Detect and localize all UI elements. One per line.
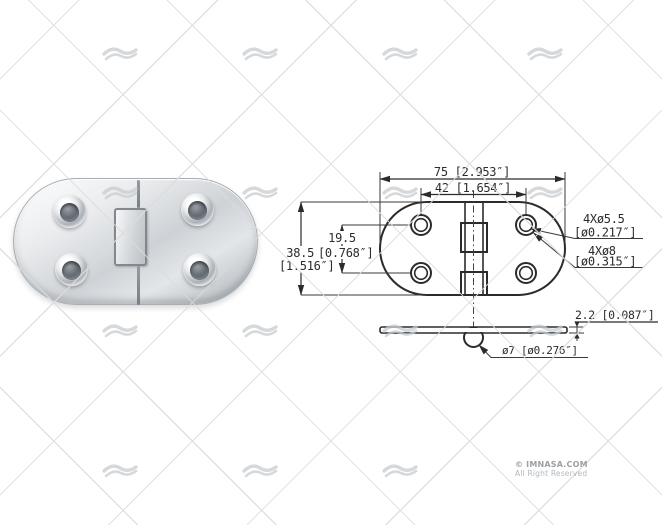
left-dimension-labels: 19.5 38.5 [0.768″] [1.516″]: [277, 231, 376, 273]
dim-pitch-v-in: [0.768″]: [318, 246, 373, 260]
technical-drawing: 75 [2.953″] 42 [1.654″] 19.5 38.5 [0.768…: [0, 0, 662, 525]
hole-bottom-left: [411, 263, 431, 283]
top-view: [380, 191, 565, 334]
dim-width-label: 75 [2.953″]: [434, 165, 510, 179]
callout-large-hole-in: [ø0.315″]: [574, 255, 636, 269]
callout-small-hole-in: [ø0.217″]: [574, 226, 636, 240]
dim-height-mm: 38.5: [286, 246, 314, 260]
dim-pitch-v-mm: 19.5: [328, 231, 356, 245]
callout-small-hole-qty: 4Xø5.5: [583, 212, 625, 226]
dimension-thickness-2-2: 2.2 [0.087″]: [569, 308, 658, 341]
dim-height-in: [1.516″]: [279, 259, 334, 273]
hole-top-left: [411, 215, 431, 235]
hole-bottom-right: [516, 263, 536, 283]
dim-hole-pitch-label: 42 [1.654″]: [435, 181, 511, 195]
copyright-text: © IMNASA.COM: [515, 460, 588, 469]
hole-top-right: [516, 215, 536, 235]
dim-knuckle-label: ø7 [ø0.276″]: [502, 344, 578, 357]
dim-thickness-label: 2.2 [0.087″]: [575, 308, 654, 322]
rights-text: All Right Reserved: [515, 469, 588, 478]
copyright-block: © IMNASA.COM All Right Reserved: [515, 460, 588, 478]
dimension-knuckle-dia-7: ø7 [ø0.276″]: [479, 344, 588, 358]
product-image: 75 [2.953″] 42 [1.654″] 19.5 38.5 [0.768…: [0, 0, 662, 525]
